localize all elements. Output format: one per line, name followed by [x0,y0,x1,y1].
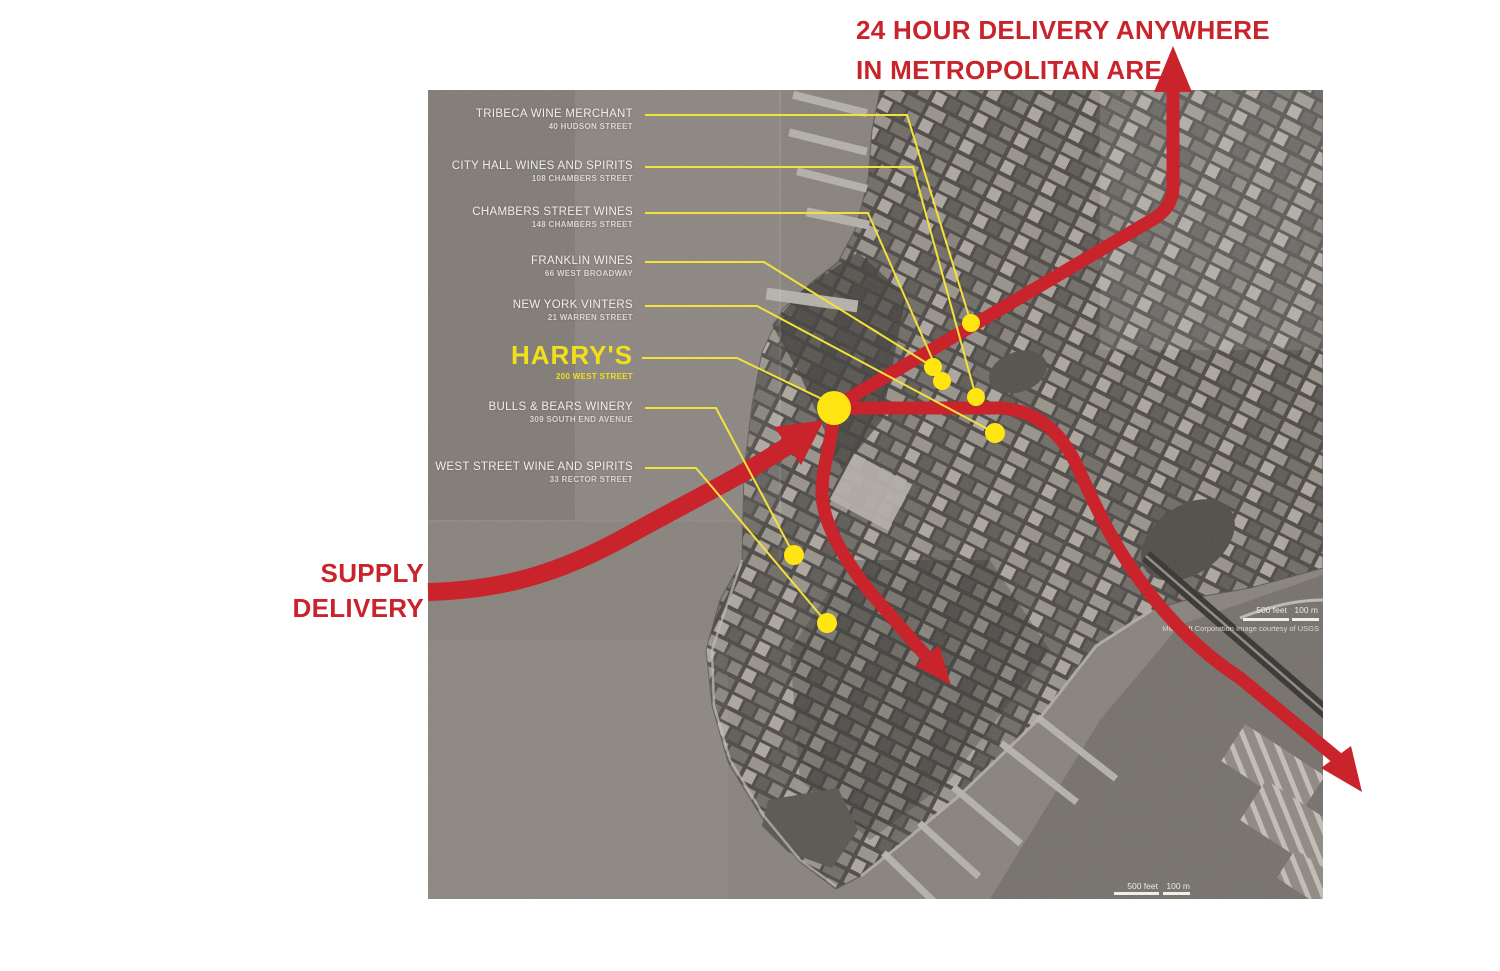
scalebar-bottom-meters-label: 100 m [1166,881,1190,891]
headline-line2: IN METROPOLITAN AREA [856,50,1270,90]
location-address: 108 CHAMBERS STREET [452,174,633,184]
scalebar-mid-feet-label: 500 feet [1256,605,1287,615]
delivery-map-poster: 500 feet 100 m Microsoft Corporation Ima… [0,0,1500,971]
dot-city-hall [967,388,985,406]
supply-delivery-headline: SUPPLY DELIVERY [293,556,424,626]
location-address: 148 CHAMBERS STREET [472,220,633,230]
location-name: TRIBECA WINE MERCHANT [476,108,633,121]
dot-bulls-bears [784,545,804,565]
location-address: 21 WARREN STREET [513,313,633,323]
location-name: BULLS & BEARS WINERY [489,401,633,414]
location-label-tribeca: TRIBECA WINE MERCHANT 40 HUDSON STREET [476,108,633,132]
dot-chambers [933,372,951,390]
dot-west-street [817,613,837,633]
location-address: 66 WEST BROADWAY [531,269,633,279]
location-address: 40 HUDSON STREET [476,122,633,132]
location-name: HARRY'S [511,341,633,369]
supply-line1: SUPPLY [293,556,424,591]
location-label-new-york-vinters: NEW YORK VINTERS 21 WARREN STREET [513,299,633,323]
location-name: NEW YORK VINTERS [513,299,633,312]
location-label-bulls-bears: BULLS & BEARS WINERY 309 SOUTH END AVENU… [489,401,633,425]
location-address: 33 RECTOR STREET [435,475,633,485]
dot-tribeca [962,314,980,332]
location-address: 309 SOUTH END AVENUE [489,415,633,425]
dot-new-york-vinters [985,423,1005,443]
scalebar-mid-meters-label: 100 m [1294,605,1318,615]
supply-line2: DELIVERY [293,591,424,626]
location-label-chambers: CHAMBERS STREET WINES 148 CHAMBERS STREE… [472,206,633,230]
location-name: FRANKLIN WINES [531,255,633,268]
location-label-west-street: WEST STREET WINE AND SPIRITS 33 RECTOR S… [435,461,633,485]
location-label-franklin: FRANKLIN WINES 66 WEST BROADWAY [531,255,633,279]
location-name: CITY HALL WINES AND SPIRITS [452,160,633,173]
delivery-area-headline: 24 HOUR DELIVERY ANYWHERE IN METROPOLITA… [856,10,1270,90]
location-address: 200 WEST STREET [511,372,633,382]
location-name: WEST STREET WINE AND SPIRITS [435,461,633,474]
location-name: CHAMBERS STREET WINES [472,206,633,219]
dot-harrys [817,391,851,425]
headline-line1: 24 HOUR DELIVERY ANYWHERE [856,10,1270,50]
location-label-harrys: HARRY'S 200 WEST STREET [511,341,633,382]
location-label-city-hall: CITY HALL WINES AND SPIRITS 108 CHAMBERS… [452,160,633,184]
scalebar-bottom-feet-label: 500 feet [1127,881,1158,891]
satellite-map: 500 feet 100 m Microsoft Corporation Ima… [0,0,1500,971]
